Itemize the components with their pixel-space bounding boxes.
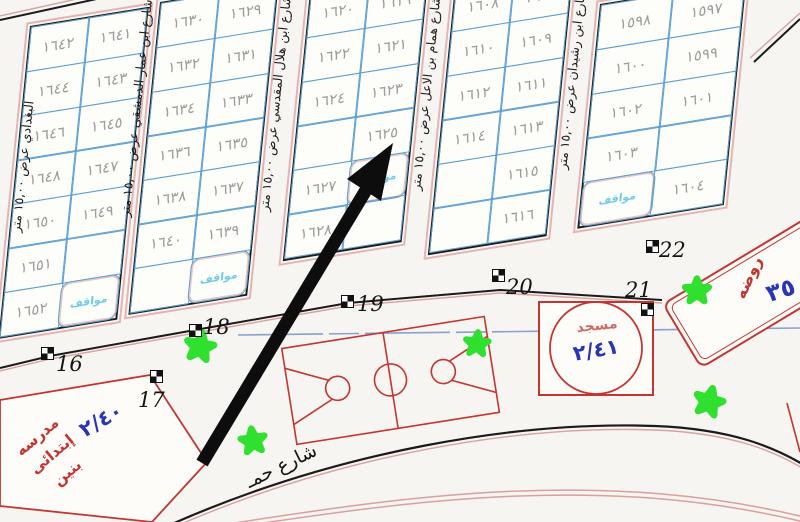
red-boundary-right	[787, 403, 800, 452]
tree-star-icon	[693, 385, 725, 416]
tree-star-icon	[465, 331, 489, 354]
junction-marker	[189, 324, 202, 337]
junction-number-20: 20	[506, 275, 533, 299]
subdivision-map: ١٦٤٢١٦٤١١٦٤٤١٦٤٣١٦٤٦١٦٤٥١٦٤٨١٦٤٧١٦٥٠١٦٤٩…	[0, 0, 800, 522]
plot-cell	[429, 198, 492, 253]
junction-marker	[150, 370, 163, 383]
plot-cell	[342, 195, 405, 250]
tree-star-icon	[239, 427, 266, 453]
junction-marker	[41, 347, 54, 360]
junction-marker	[641, 303, 654, 316]
plot-cell: ١٦٢٨	[284, 204, 347, 259]
parking-cell: مواقف	[187, 249, 250, 304]
junction-marker	[341, 295, 354, 308]
plot-cell	[130, 259, 193, 314]
junction-marker	[492, 269, 505, 282]
junction-number-21: 21	[625, 278, 652, 302]
road-edge-top-right	[750, 13, 800, 62]
junction-number-19: 19	[357, 292, 384, 316]
junction-number-16: 16	[56, 352, 83, 376]
basketball-court	[282, 316, 500, 444]
junction-marker	[646, 240, 659, 253]
junction-number-17: 17	[138, 388, 165, 412]
junction-number-22: 22	[659, 238, 686, 262]
block-E: ١٥٩٨١٥٩٧١٦٠٠١٥٩٩١٦٠٢١٦٠١١٦٠٣مواقف١٦٠٤	[577, 0, 746, 229]
junction-number-18: 18	[203, 315, 230, 339]
plot-cell: ١٦١٦	[487, 189, 550, 244]
